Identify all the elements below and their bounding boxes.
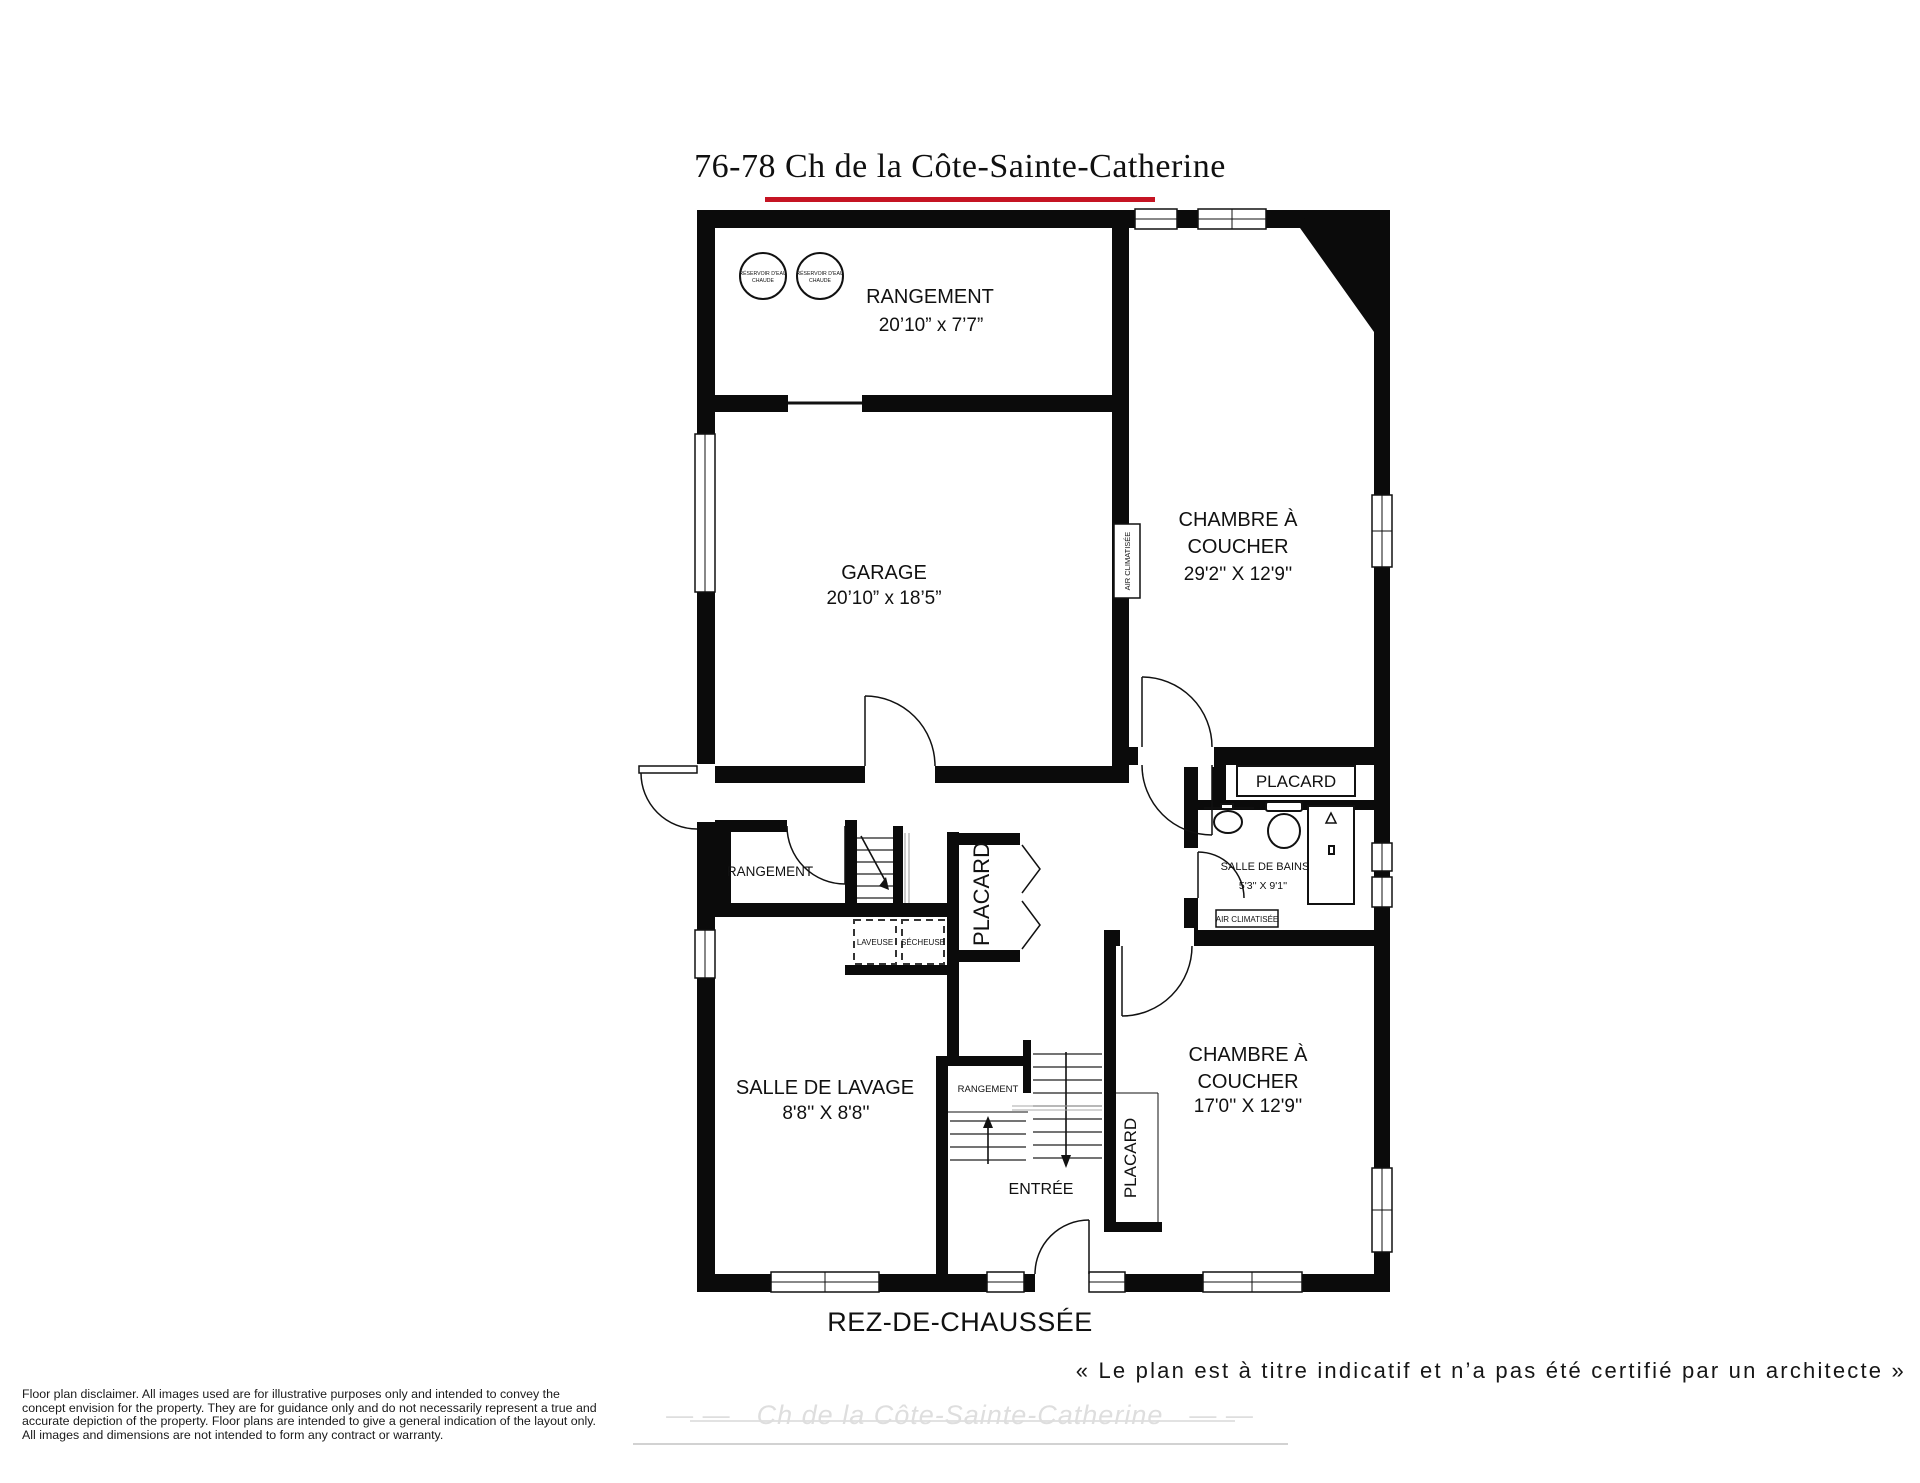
window-top-2 — [1198, 209, 1266, 229]
room-dims-salle-de-lavage: 8'8'' X 8'8'' — [782, 1103, 869, 1124]
watermark-text: Ch de la Côte-Sainte-Catherine — [757, 1400, 1164, 1430]
room-label-rangement-haut: RANGEMENT — [866, 286, 994, 308]
window-bottom-3 — [1089, 1272, 1125, 1292]
watermark-rule — [633, 1443, 1288, 1445]
room-labels: RANGEMENT 20’10” x 7’7” GARAGE 20’10” x … — [727, 286, 1355, 1198]
room-label-chambre-haut: COUCHER — [1187, 536, 1288, 558]
toilet-bowl-icon — [1268, 814, 1300, 848]
bathroom-door — [1198, 852, 1244, 898]
room-label-garage: GARAGE — [841, 562, 927, 584]
window-bedroom-right — [1372, 495, 1392, 567]
window-garage-left — [695, 434, 715, 592]
title-underline — [765, 197, 1155, 202]
disclaimer-line: All images and dimensions are not intend… — [22, 1429, 597, 1443]
room-label-chambre-haut: CHAMBRE À — [1179, 508, 1299, 531]
floor-plan-page: RÉSERVOIR D'EAU CHAUDE RÉSERVOIR D'EAU C… — [0, 0, 1920, 1483]
toilet-tank-icon — [1266, 802, 1302, 811]
floor-plan-drawing: RÉSERVOIR D'EAU CHAUDE RÉSERVOIR D'EAU C… — [0, 0, 1920, 1483]
dryer-label: SÉCHEUSE — [901, 938, 945, 947]
disclaimer-line: accurate depiction of the property. Floo… — [22, 1415, 597, 1429]
floor-level-label: REZ-DE-CHAUSSÉE — [0, 1307, 1920, 1338]
room-label-placard-haut: PLACARD — [1256, 772, 1336, 791]
room-label-salle-de-lavage: SALLE DE LAVAGE — [736, 1077, 914, 1099]
room-dims-garage: 20’10” x 18’5” — [826, 588, 941, 609]
window-bottom-1 — [771, 1272, 879, 1292]
faucet-icon — [1221, 804, 1233, 809]
window-left-lower — [695, 930, 715, 978]
room-label-placard-milieu: PLACARD — [969, 842, 994, 946]
room-dims-chambre-bas: 17'0'' X 12'9'' — [1194, 1096, 1302, 1117]
laundry-appliances: LAVEUSE SÉCHEUSE — [854, 920, 945, 964]
room-label-entree: ENTRÉE — [1009, 1179, 1074, 1198]
garage-door — [865, 696, 935, 766]
room-dims-rangement-haut: 20’10” x 7’7” — [879, 315, 984, 336]
watermark-dashes-right: — — — [1189, 1400, 1254, 1430]
walls — [697, 210, 1390, 1292]
floor-plan-disclaimer: Floor plan disclaimer. All images used a… — [22, 1388, 597, 1443]
tank-label: CHAUDE — [809, 278, 831, 284]
window-bath-right-1 — [1372, 843, 1392, 871]
shower-valve-icon — [1329, 846, 1334, 854]
tank-label: CHAUDE — [752, 278, 774, 284]
page-title: 76-78 Ch de la Côte-Sainte-Catherine — [0, 148, 1920, 186]
room-label-salle-de-bains: SALLE DE BAINS — [1221, 861, 1310, 873]
room-dims-salle-de-bains: 5'3'' X 9'1'' — [1239, 880, 1287, 892]
room-dims-chambre-haut: 29'2'' X 12'9'' — [1184, 564, 1292, 585]
disclaimer-line: Floor plan disclaimer. All images used a… — [22, 1388, 597, 1402]
window-bottom-4 — [1203, 1272, 1302, 1292]
washer-label: LAVEUSE — [857, 938, 893, 947]
window-bedroom2-right — [1372, 1168, 1392, 1252]
window-top-1 — [1135, 209, 1177, 229]
water-tanks: RÉSERVOIR D'EAU CHAUDE RÉSERVOIR D'EAU C… — [739, 253, 844, 299]
room-label-placard-bas: PLACARD — [1121, 1118, 1140, 1198]
window-bath-right-2 — [1372, 877, 1392, 907]
side-entry-door — [639, 766, 697, 829]
room-label-rangement-bas: RANGEMENT — [958, 1084, 1019, 1095]
front-entry-door — [1035, 1220, 1089, 1274]
bedroom-bottom-door — [1122, 946, 1192, 1016]
tank-label: RÉSERVOIR D'EAU — [796, 270, 844, 277]
window-bottom-2 — [987, 1272, 1024, 1292]
room-label-chambre-bas: CHAMBRE À — [1189, 1043, 1309, 1066]
sink-icon — [1214, 811, 1242, 833]
architect-disclaimer-note: « Le plan est à titre indicatif et n’a p… — [1076, 1358, 1906, 1384]
stairs-up-entry — [950, 1116, 1026, 1164]
ac-wall-unit-label: AIR CLIMATISÉE — [1123, 532, 1132, 591]
room-label-chambre-bas: COUCHER — [1197, 1071, 1298, 1093]
closet-bifold-doors — [1022, 845, 1040, 949]
watermark-dashes-left: — — — [666, 1400, 731, 1430]
tank-label: RÉSERVOIR D'EAU — [739, 270, 787, 277]
room-label-rangement-milieu: RANGEMENT — [727, 864, 813, 879]
disclaimer-line: concept envision for the property. They … — [22, 1402, 597, 1416]
ac-room-unit-label: AIR CLIMATISÉE — [1216, 915, 1279, 924]
